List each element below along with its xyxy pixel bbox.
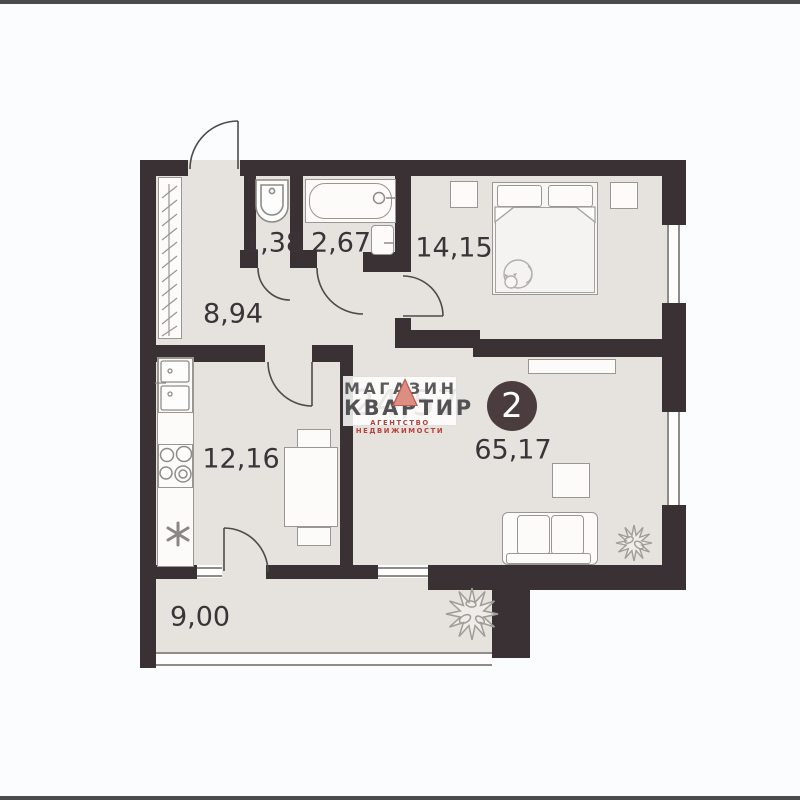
bed-pillow-right	[548, 185, 593, 207]
window-bedroom	[667, 225, 680, 303]
area-label-living: 65,17	[474, 435, 551, 466]
area-label-kitchen: 12,16	[202, 444, 279, 475]
wall-living-bottom	[428, 565, 686, 590]
floorplan: 1,38 2,67 14,15 8,94 12,16 65,17 9,00 24…	[0, 0, 800, 800]
wall-balcony-right	[492, 578, 530, 658]
wall-outer-left	[140, 160, 156, 668]
window-living-balcony	[378, 567, 428, 577]
wall-bedroom-left-upper	[395, 176, 411, 272]
wall-outer-right-mid	[662, 303, 686, 412]
wall-balcony-top-b	[266, 565, 378, 579]
window-kitchen-balcony	[197, 567, 222, 577]
kitchen-chair-bottom	[297, 527, 331, 546]
area-label-balcony: 9,00	[170, 602, 230, 633]
area-label-bedroom: 14,15	[415, 233, 492, 264]
closet	[158, 177, 182, 339]
floor-balcony-door-opening	[222, 565, 266, 579]
area-label-bathroom: 2,67	[311, 228, 371, 259]
bathtub-inner	[309, 183, 392, 219]
bed-blanket	[495, 207, 595, 293]
area-label-hallway: 8,94	[203, 299, 263, 330]
area-label-wc: 1,38	[243, 228, 303, 259]
watermark-tagline: АГЕНТСТВО НЕДВИЖИМОСТИ	[344, 419, 456, 435]
wall-outer-right-top	[662, 160, 686, 225]
coffee-table	[552, 463, 590, 498]
washbasin-icon	[371, 225, 394, 255]
wall-outer-top-stub	[140, 160, 188, 176]
logo-triangle-icon	[394, 381, 416, 405]
sofa-cushion-right	[551, 515, 584, 555]
wall-balcony-top-a	[156, 565, 197, 579]
sofa-cushion-left	[517, 515, 550, 555]
fridge-icon	[158, 358, 193, 413]
sofa-back-rail	[506, 553, 591, 564]
stove-icon	[158, 444, 193, 488]
room-count-badge: 2	[487, 381, 537, 431]
nightstand-right	[610, 182, 638, 209]
kitchen-table	[284, 447, 338, 527]
kitchen-chair-top	[297, 429, 331, 448]
window-living	[667, 412, 680, 505]
wall-bedroom-bottom-b	[473, 339, 662, 357]
window-balcony-front	[156, 652, 492, 666]
wall-bedroom-bottom-a	[395, 330, 480, 348]
nightstand-left	[450, 181, 478, 208]
wall-outer-top	[240, 160, 686, 176]
bed-pillow-left	[497, 185, 542, 207]
floor-entrance-opening	[188, 160, 240, 176]
agency-watermark: МАГАЗИН КВАРТИР АГЕНТСТВО НЕДВИЖИМОСТИ	[343, 376, 457, 426]
floorplan-page: { "window": { "background": "#fbfcfe", "…	[0, 0, 800, 800]
tv-shelf-icon	[528, 359, 616, 374]
